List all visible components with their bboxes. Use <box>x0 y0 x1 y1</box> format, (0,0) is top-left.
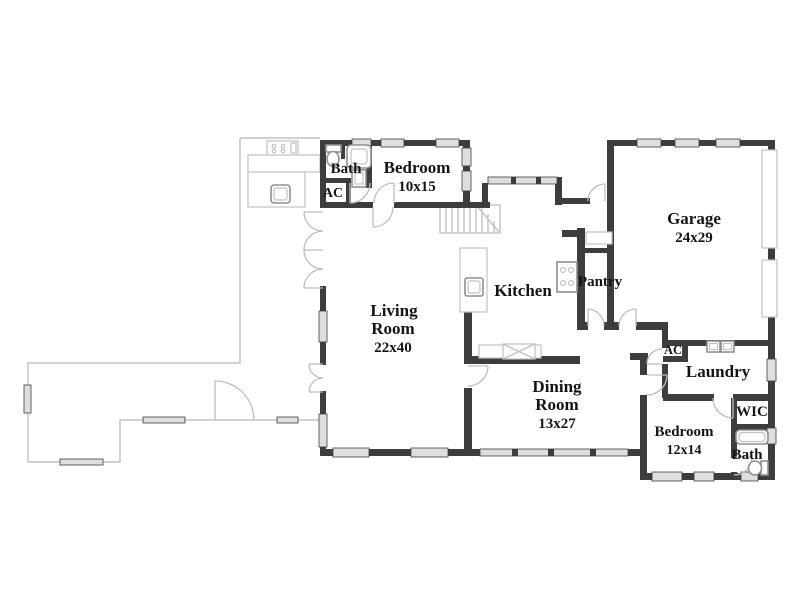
label-dining-dims: 13x27 <box>538 416 576 432</box>
bedroom-door <box>373 183 394 227</box>
patio-window <box>277 417 298 423</box>
toilet-icon <box>749 461 769 475</box>
label-wic: WIC <box>736 404 768 420</box>
floor-plan-drawing: Bath AC Bedroom 10x15 Garage 24x29 Kitch… <box>0 0 800 600</box>
dining-counter <box>479 344 541 359</box>
label-living-2: Room <box>371 319 414 338</box>
label-living-dims: 22x40 <box>374 340 412 356</box>
label-bath-lower: Bath <box>732 447 764 463</box>
label-bedroom-upper-dims: 10x15 <box>398 179 436 195</box>
cooktop-icon <box>267 141 298 155</box>
label-ac-right: AC <box>664 343 682 357</box>
room-labels: Bath AC Bedroom 10x15 Garage 24x29 Kitch… <box>323 158 768 463</box>
label-dining-2: Room <box>535 395 578 414</box>
laundry-door <box>647 349 662 364</box>
patio-window <box>60 459 103 465</box>
french-door <box>309 364 323 392</box>
patio-window <box>143 417 185 423</box>
kitchen-island <box>460 248 487 312</box>
label-ac-upper: AC <box>323 186 343 201</box>
dining-door <box>468 366 488 386</box>
patio-window <box>24 385 31 413</box>
outdoor-kitchen <box>248 141 320 207</box>
entry-stairs <box>440 205 500 233</box>
sink-icon <box>271 185 290 203</box>
floor-plan: Bath AC Bedroom 10x15 Garage 24x29 Kitch… <box>0 0 800 600</box>
pantry-shelf <box>586 232 612 244</box>
label-kitchen: Kitchen <box>494 281 552 300</box>
label-laundry: Laundry <box>686 362 751 381</box>
front-door <box>588 184 605 201</box>
label-bedroom-lower: Bedroom <box>655 424 714 440</box>
label-garage-dims: 24x29 <box>675 230 713 246</box>
label-living-1: Living <box>370 301 418 320</box>
label-bedroom-upper: Bedroom <box>384 158 451 177</box>
counter <box>248 155 320 172</box>
label-bath-upper: Bath <box>331 161 363 177</box>
garage-door <box>762 150 777 248</box>
garage-doors <box>762 150 777 317</box>
label-pantry: Pantry <box>578 274 623 290</box>
tub-icon <box>736 430 768 444</box>
garage-door <box>762 260 777 317</box>
label-garage: Garage <box>667 209 721 228</box>
range-icon <box>557 262 577 292</box>
label-bedroom-lower-dims: 12x14 <box>667 443 702 458</box>
washer-dryer-icon <box>707 341 734 352</box>
french-door <box>304 212 323 288</box>
label-dining-1: Dining <box>532 377 582 396</box>
patio-door <box>215 381 254 420</box>
wic-door <box>713 398 733 418</box>
